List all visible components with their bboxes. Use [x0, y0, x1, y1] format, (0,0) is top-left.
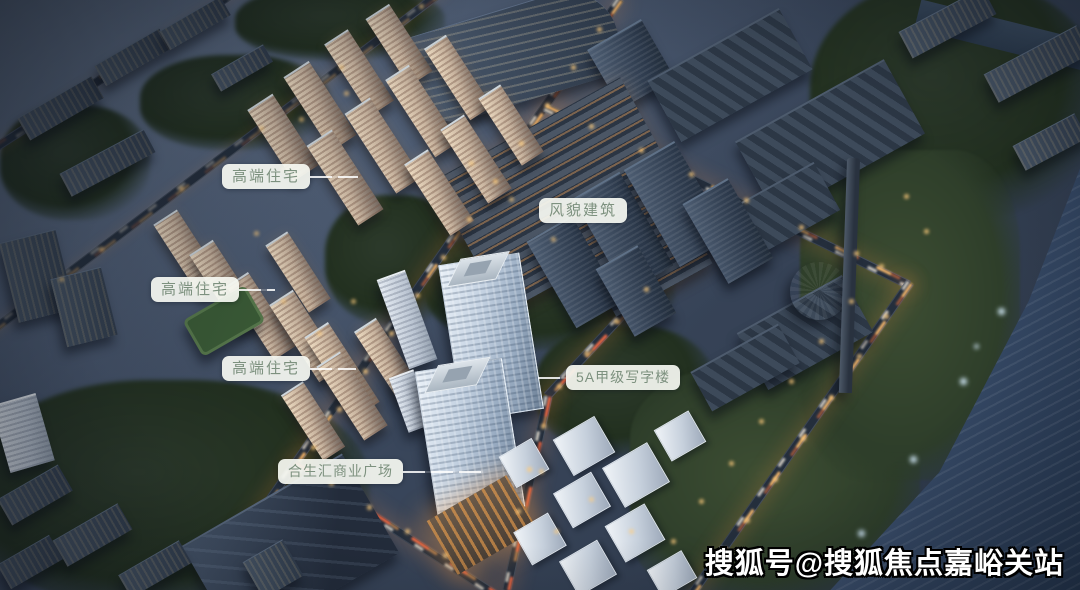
annotation-label: 高端住宅 — [232, 360, 300, 377]
building — [159, 0, 231, 50]
annotation-mall-plaza: 合生汇商业广场 — [278, 459, 403, 484]
annotation-residential-north: 高端住宅 — [222, 164, 310, 189]
tower-roof-cap — [424, 357, 491, 394]
annotation-residential-west: 高端住宅 — [151, 277, 239, 302]
leader-line — [538, 377, 566, 379]
sohu-watermark: 搜狐号@搜狐焦点嘉峪关站 — [705, 540, 1064, 582]
aerial-night-render: 高端住宅 风貌建筑 高端住宅 高端住宅 5A甲级写字楼 合生汇商业广场 搜狐号@… — [0, 0, 1080, 590]
annotation-label: 5A甲级写字楼 — [576, 369, 670, 385]
dock-lights — [0, 0, 3, 3]
gas-holder-dome — [790, 262, 848, 320]
leader-line — [403, 471, 483, 473]
annotation-label: 合生汇商业广场 — [288, 463, 393, 479]
leader-line — [239, 289, 275, 291]
annotation-label: 高端住宅 — [232, 168, 300, 185]
annotation-label: 风貌建筑 — [549, 202, 617, 219]
campus-block — [559, 540, 617, 590]
annotation-heritage: 风貌建筑 — [539, 198, 627, 223]
leader-line — [310, 368, 356, 370]
annotation-residential-mid: 高端住宅 — [222, 356, 310, 381]
campus-block — [553, 472, 611, 529]
annotation-office-tower: 5A甲级写字楼 — [566, 365, 680, 390]
annotation-label: 高端住宅 — [161, 281, 229, 298]
building — [50, 267, 117, 348]
leader-line — [310, 176, 358, 178]
